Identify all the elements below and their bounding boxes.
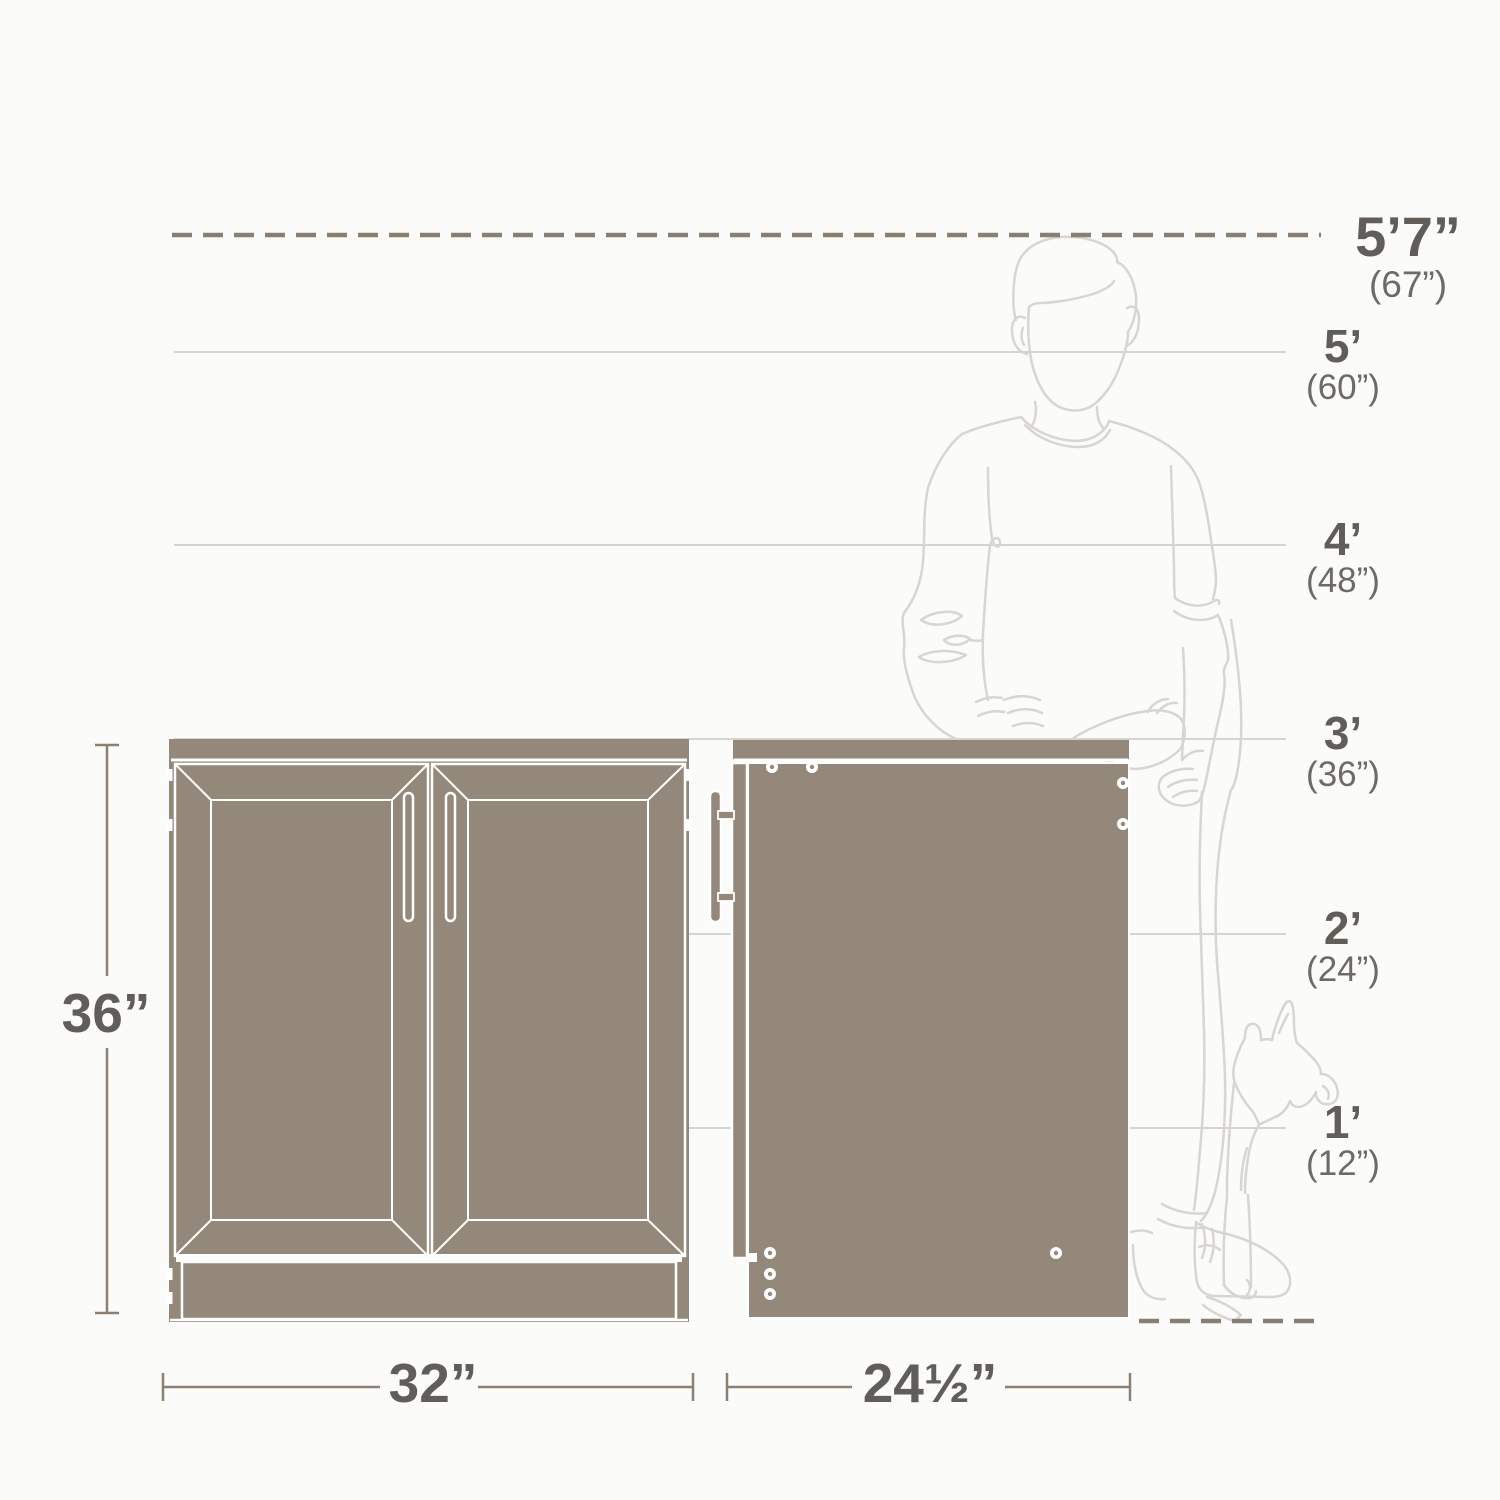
svg-text:(48”): (48”) xyxy=(1306,561,1380,600)
svg-text:4’: 4’ xyxy=(1324,513,1362,565)
svg-text:(67”): (67”) xyxy=(1369,264,1447,305)
svg-text:(24”): (24”) xyxy=(1306,950,1380,989)
svg-text:24½”: 24½” xyxy=(863,1352,998,1414)
svg-text:3’: 3’ xyxy=(1324,707,1362,759)
svg-text:36”: 36” xyxy=(62,982,151,1044)
svg-text:2’: 2’ xyxy=(1324,902,1362,954)
svg-text:(12”): (12”) xyxy=(1306,1144,1380,1183)
svg-text:1’: 1’ xyxy=(1324,1096,1362,1148)
svg-text:(60”): (60”) xyxy=(1306,368,1380,407)
svg-text:5’7”: 5’7” xyxy=(1355,205,1461,268)
svg-text:(36”): (36”) xyxy=(1306,755,1380,794)
svg-text:32”: 32” xyxy=(389,1352,478,1414)
svg-text:5’: 5’ xyxy=(1324,320,1362,372)
